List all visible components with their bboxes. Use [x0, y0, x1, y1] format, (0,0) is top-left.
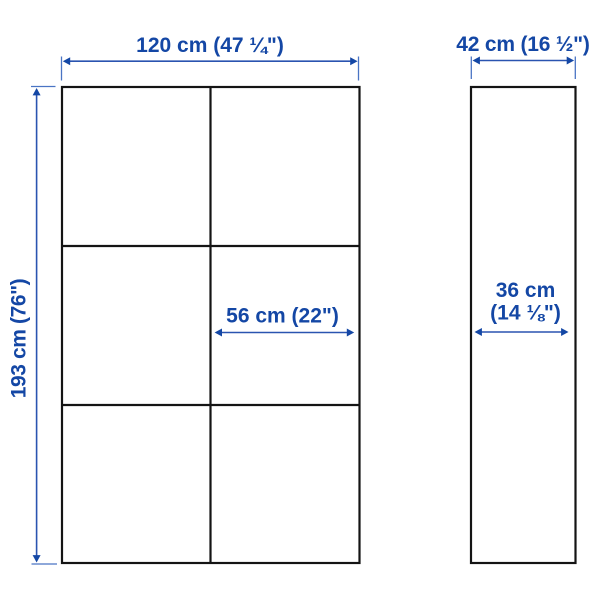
svg-text:193 cm (76"): 193 cm (76") [8, 279, 31, 399]
svg-text:(14 ⅛"): (14 ⅛") [490, 302, 561, 325]
svg-text:36 cm: 36 cm [496, 279, 556, 302]
svg-text:120 cm (47 ¼"): 120 cm (47 ¼") [136, 34, 284, 57]
svg-text:56 cm (22"): 56 cm (22") [226, 305, 339, 328]
svg-text:42 cm (16 ½"): 42 cm (16 ½") [456, 33, 589, 56]
